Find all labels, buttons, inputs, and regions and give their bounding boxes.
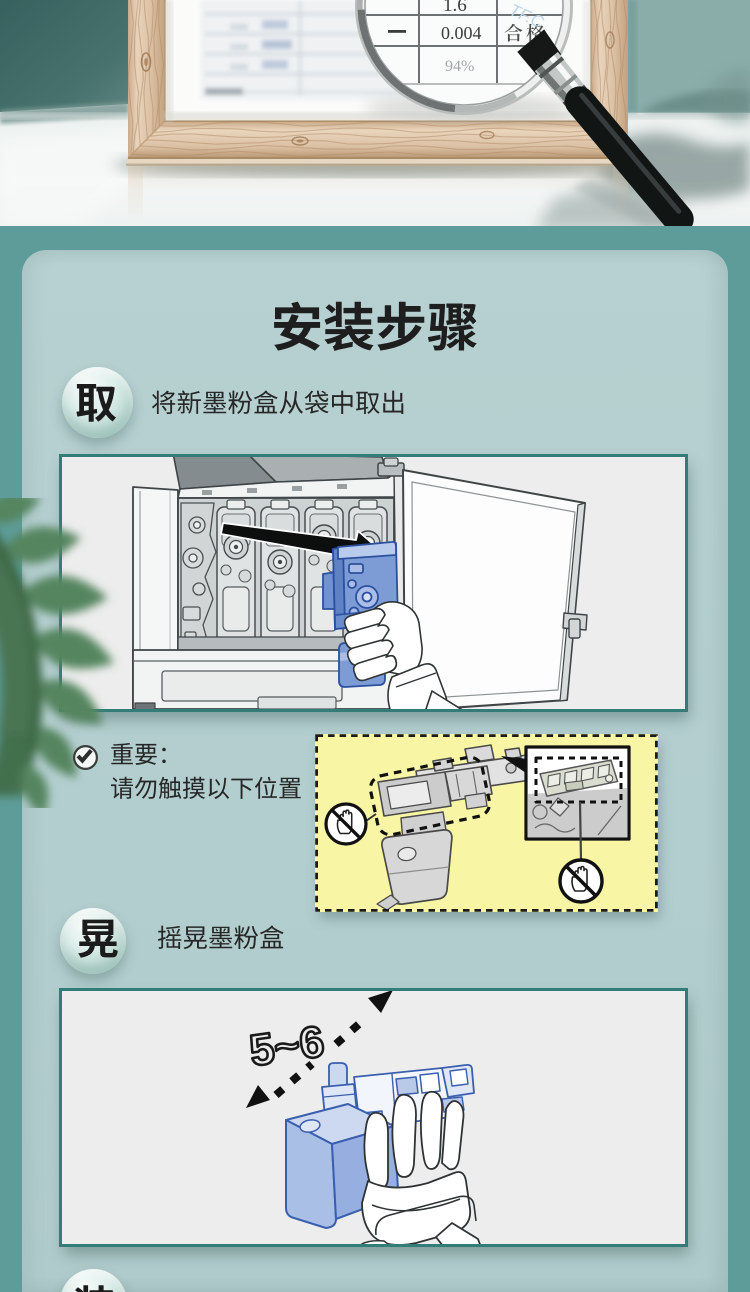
svg-text:1.6: 1.6 [443, 0, 467, 16]
svg-text:94%: 94% [445, 58, 474, 75]
svg-text:0.004: 0.004 [441, 23, 482, 43]
svg-text:5~6: 5~6 [247, 1017, 328, 1076]
